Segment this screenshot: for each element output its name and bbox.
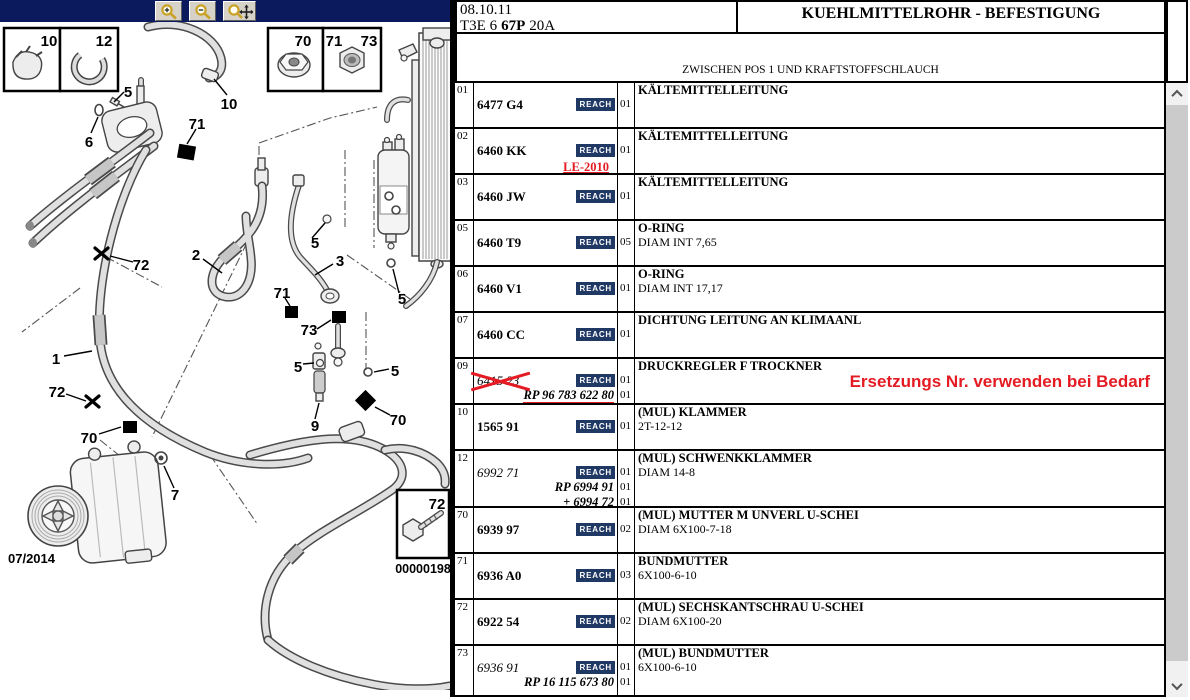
part-number-cell: 6992 71REACHRP 6994 91+ 6994 72 xyxy=(474,451,618,506)
table-row: 016477 G4REACH01KÄLTEMITTELLEITUNG xyxy=(455,83,1164,129)
diagram-callout: 5 xyxy=(124,84,132,101)
diagram-callout: 70 xyxy=(390,412,407,429)
part-number-cell: 1565 91REACH xyxy=(474,405,618,449)
description-title: O-RING xyxy=(638,268,1164,281)
parts-table: 016477 G4REACH01KÄLTEMITTELLEITUNG026460… xyxy=(455,83,1166,697)
quantity-cell: 0101 xyxy=(618,359,635,403)
diagram-callout: 1 xyxy=(52,351,60,368)
description-cell: KÄLTEMITTELLEITUNG xyxy=(635,129,1164,173)
diagram-callout: 3 xyxy=(336,253,344,270)
zoom-out-button[interactable] xyxy=(189,1,216,21)
quantity-cell: 01 xyxy=(618,83,635,127)
position-cell: 06 xyxy=(455,267,474,311)
part-number: 6922 54 xyxy=(477,614,519,630)
header-corner-box xyxy=(1166,0,1188,83)
table-row: 066460 V1REACH01O-RINGDIAM INT 17,17 xyxy=(455,267,1164,313)
receiver-drier xyxy=(378,99,409,249)
description-detail: 2T-12-12 xyxy=(638,419,1164,433)
table-row: 706939 97REACH02(MUL) MUTTER M UNVERL U-… xyxy=(455,508,1164,554)
header-date-box: 08.10.11 T3E 667P20A xyxy=(455,0,738,34)
description-title: (MUL) MUTTER M UNVERL U-SCHEI xyxy=(638,509,1164,522)
reach-badge[interactable]: REACH xyxy=(576,328,615,341)
zoom-out-icon xyxy=(193,3,213,20)
replacement-part-number: RP 16 115 673 80 xyxy=(474,675,617,690)
diagram-callout: 2 xyxy=(192,247,200,264)
description-title: (MUL) KLAMMER xyxy=(638,406,1164,419)
part-number-cell: 6460 JWREACH xyxy=(474,175,618,219)
position-cell: 72 xyxy=(455,600,474,644)
position-cell: 03 xyxy=(455,175,474,219)
zoom-in-button[interactable] xyxy=(155,1,182,21)
diagram-callout: 5 xyxy=(311,235,319,252)
description-title: (MUL) SCHWENKKLAMMER xyxy=(638,452,1164,465)
part-number-cell: 6936 A0REACH xyxy=(474,554,618,598)
page-title: KUEHLMITTELROHR - BEFESTIGUNG xyxy=(736,0,1166,34)
reach-badge[interactable]: REACH xyxy=(576,661,615,674)
description-title: DICHTUNG LEITUNG AN KLIMAANL xyxy=(638,314,1164,327)
reach-badge[interactable]: REACH xyxy=(576,282,615,295)
part-number-cell: 6460 V1REACH xyxy=(474,267,618,311)
replacement-part-number: + 6994 72 xyxy=(474,495,617,508)
part-number-cell: 6477 G4REACH xyxy=(474,83,618,127)
position-cell: 70 xyxy=(455,508,474,552)
header-date: 08.10.11 xyxy=(460,2,733,18)
diagram-toolbar xyxy=(0,0,451,22)
diagram-callout: 72 xyxy=(49,384,66,401)
description-title: (MUL) SECHSKANTSCHRAU U-SCHEI xyxy=(638,601,1164,614)
quantity-cell: 01 xyxy=(618,175,635,219)
zoom-in-icon xyxy=(159,3,179,20)
description-title: KÄLTEMITTELLEITUNG xyxy=(638,176,1164,189)
reach-badge[interactable]: REACH xyxy=(576,190,615,203)
diagram-callout: 70 xyxy=(295,33,312,50)
part-number: 6460 T9 xyxy=(477,235,521,251)
zoom-pan-button[interactable] xyxy=(223,1,256,21)
diagram-callout: 12 xyxy=(96,33,113,50)
part-number: 6936 A0 xyxy=(477,568,521,584)
quantity-cell: 01 xyxy=(618,129,635,173)
position-cell: 10 xyxy=(455,405,474,449)
reach-badge[interactable]: REACH xyxy=(576,144,615,157)
part-number-cell: 6936 91REACHRP 16 115 673 80 xyxy=(474,646,618,695)
position-cell: 71 xyxy=(455,554,474,598)
diagram-callout: 10 xyxy=(221,96,238,113)
description-detail: 6X100-6-10 xyxy=(638,660,1164,674)
reach-badge[interactable]: REACH xyxy=(576,374,615,387)
table-row: 716936 A0REACH03BUNDMUTTER6X100-6-10 xyxy=(455,554,1164,600)
diagram-callout: 71 xyxy=(274,285,291,302)
table-row: 026460 KKREACHLE-201001KÄLTEMITTELLEITUN… xyxy=(455,129,1164,175)
reach-badge[interactable]: REACH xyxy=(576,236,615,249)
part-number: 1565 91 xyxy=(477,419,519,435)
reach-badge[interactable]: REACH xyxy=(576,615,615,628)
diagram-callout: 71 xyxy=(189,116,206,133)
position-cell: 12 xyxy=(455,451,474,506)
replacement-part-number: RP 96 783 622 80 xyxy=(474,388,617,403)
description-detail: DIAM 6X100-7-18 xyxy=(638,522,1164,536)
diagram-callout: 9 xyxy=(311,418,319,435)
reach-badge[interactable]: REACH xyxy=(576,523,615,536)
description-detail: 6X100-6-10 xyxy=(638,568,1164,582)
description-cell: (MUL) MUTTER M UNVERL U-SCHEIDIAM 6X100-… xyxy=(635,508,1164,552)
diagram-panel: 101270717372561071272355717355970172707 … xyxy=(0,0,451,700)
diagram-callout: 70 xyxy=(81,430,98,447)
quantity-cell: 02 xyxy=(618,600,635,644)
description-cell: (MUL) SCHWENKKLAMMERDIAM 14-8 xyxy=(635,451,1164,506)
description-cell: O-RINGDIAM INT 7,65 xyxy=(635,221,1164,265)
table-row: 126992 71REACHRP 6994 91+ 6994 72010101(… xyxy=(455,451,1164,508)
diagram-callout: 72 xyxy=(429,496,446,513)
reach-badge[interactable]: REACH xyxy=(576,466,615,479)
replacement-part-number: RP 6994 91 xyxy=(474,480,617,495)
description-title: KÄLTEMITTELLEITUNG xyxy=(638,130,1164,143)
description-cell: DICHTUNG LEITUNG AN KLIMAANL xyxy=(635,313,1164,357)
diagram-callout: 6 xyxy=(85,134,93,151)
diagram-callout: 5 xyxy=(294,359,302,376)
description-detail: DIAM INT 17,17 xyxy=(638,281,1164,295)
table-row: 056460 T9REACH05O-RINGDIAM INT 7,65 xyxy=(455,221,1164,267)
quantity-cell: 05 xyxy=(618,221,635,265)
description-cell: BUNDMUTTER6X100-6-10 xyxy=(635,554,1164,598)
scroll-down-button[interactable] xyxy=(1166,675,1188,697)
description-detail: DIAM 14-8 xyxy=(638,465,1164,479)
part-number: 6415 23 xyxy=(477,373,519,389)
table-row: 076460 CCREACH01DICHTUNG LEITUNG AN KLIM… xyxy=(455,313,1164,359)
scrollbar-track[interactable] xyxy=(1166,661,1188,675)
part-number: 6460 KK xyxy=(477,143,526,159)
quantity-cell: 02 xyxy=(618,508,635,552)
part-number: 6992 71 xyxy=(477,465,519,481)
part-number-cell: 6939 97REACH xyxy=(474,508,618,552)
description-detail: DIAM 6X100-20 xyxy=(638,614,1164,628)
quantity-cell: 0101 xyxy=(618,646,635,695)
description-cell: O-RINGDIAM INT 17,17 xyxy=(635,267,1164,311)
diagram-callout: 5 xyxy=(391,363,399,380)
quantity-cell: 03 xyxy=(618,554,635,598)
table-row: 736936 91REACHRP 16 115 673 800101(MUL) … xyxy=(455,646,1164,695)
part-note-link[interactable]: LE-2010 xyxy=(474,160,617,175)
position-cell: 02 xyxy=(455,129,474,173)
diagram-date-label: 07/2014 xyxy=(8,551,55,566)
description-cell: (MUL) KLAMMER2T-12-12 xyxy=(635,405,1164,449)
description-cell: KÄLTEMITTELLEITUNG xyxy=(635,83,1164,127)
diagram-callout: 72 xyxy=(133,257,150,274)
part-number: 6460 JW xyxy=(477,189,526,205)
description-cell: (MUL) BUNDMUTTER6X100-6-10 xyxy=(635,646,1164,695)
description-cell: KÄLTEMITTELLEITUNG xyxy=(635,175,1164,219)
scroll-up-button[interactable] xyxy=(1166,83,1188,105)
scrollbar-thumb[interactable] xyxy=(1166,105,1188,661)
position-cell: 01 xyxy=(455,83,474,127)
part-number: 6460 V1 xyxy=(477,281,522,297)
zoom-pan-icon xyxy=(226,3,253,20)
quantity-cell: 01 xyxy=(618,267,635,311)
position-cell: 05 xyxy=(455,221,474,265)
description-title: O-RING xyxy=(638,222,1164,235)
diagram-callout: 73 xyxy=(301,322,318,339)
part-number: 6939 97 xyxy=(477,522,519,538)
description-detail: DIAM INT 7,65 xyxy=(638,235,1164,249)
table-row: 726922 54REACH02(MUL) SECHSKANTSCHRAU U-… xyxy=(455,600,1164,646)
chevron-down-icon xyxy=(1171,679,1182,690)
quantity-cell: 010101 xyxy=(618,451,635,506)
table-row: 101565 91REACH01(MUL) KLAMMER2T-12-12 xyxy=(455,405,1164,451)
description-title: BUNDMUTTER xyxy=(638,555,1164,568)
part-number-cell: 6460 KKREACHLE-2010 xyxy=(474,129,618,173)
diagram-image-number: 00000198 xyxy=(392,562,454,576)
diagram-callout: 10 xyxy=(41,33,58,50)
replacement-annotation: Ersetzungs Nr. verwenden bei Bedarf xyxy=(850,372,1150,392)
diagram-callout: 71 xyxy=(326,33,343,50)
position-cell: 09 xyxy=(455,359,474,403)
part-number: 6460 CC xyxy=(477,327,525,343)
description-title: KÄLTEMITTELLEITUNG xyxy=(638,84,1164,97)
quantity-cell: 01 xyxy=(618,405,635,449)
chevron-up-icon xyxy=(1171,90,1182,101)
diagram-callout: 73 xyxy=(361,33,378,50)
reach-badge[interactable]: REACH xyxy=(576,569,615,582)
part-number-cell: 6460 T9REACH xyxy=(474,221,618,265)
reach-badge[interactable]: REACH xyxy=(576,98,615,111)
part-number: 6477 G4 xyxy=(477,97,523,113)
part-number-cell: 6922 54REACH xyxy=(474,600,618,644)
quantity-cell: 01 xyxy=(618,313,635,357)
description-cell: DRUCKREGLER F TROCKNERErsetzungs Nr. ver… xyxy=(635,359,1164,403)
position-cell: 73 xyxy=(455,646,474,695)
scrollbar[interactable] xyxy=(1166,83,1188,697)
reach-badge[interactable]: REACH xyxy=(576,420,615,433)
pressure-sensor xyxy=(313,343,325,401)
description-title: (MUL) BUNDMUTTER xyxy=(638,647,1164,660)
parts-diagram: 101270717372561071272355717355970172707 xyxy=(0,22,451,690)
description-cell: (MUL) SECHSKANTSCHRAU U-SCHEIDIAM 6X100-… xyxy=(635,600,1164,644)
diagram-callout: 5 xyxy=(398,291,406,308)
part-number-cell: 6460 CCREACH xyxy=(474,313,618,357)
part-number-cell: 6415 23REACHRP 96 783 622 80 xyxy=(474,359,618,403)
part-number: 6936 91 xyxy=(477,660,519,676)
table-row: 096415 23REACHRP 96 783 622 800101DRUCKR… xyxy=(455,359,1164,405)
diagram-callout: 7 xyxy=(171,487,179,504)
table-row: 036460 JWREACH01KÄLTEMITTELLEITUNG xyxy=(455,175,1164,221)
page-subtitle: ZWISCHEN POS 1 UND KRAFTSTOFFSCHLAUCH xyxy=(455,32,1166,83)
position-cell: 07 xyxy=(455,313,474,357)
